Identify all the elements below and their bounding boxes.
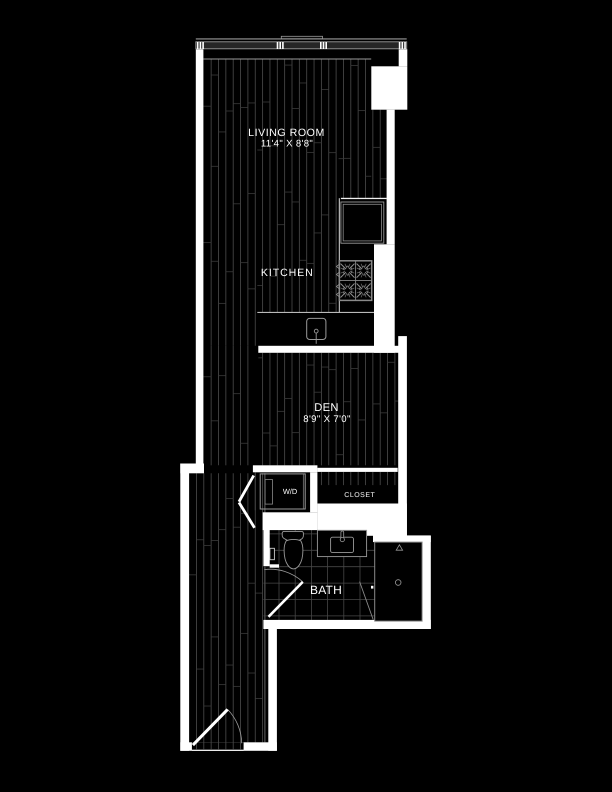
svg-text:DEN: DEN [314,402,339,414]
svg-text:11'4" X 8'8": 11'4" X 8'8" [261,139,313,150]
svg-text:LIVING ROOM: LIVING ROOM [248,127,325,139]
svg-text:KITCHEN: KITCHEN [261,267,314,279]
svg-text:CLOSET: CLOSET [344,492,375,499]
svg-text:W/D: W/D [283,487,297,496]
svg-text:8'9" X 7'0": 8'9" X 7'0" [303,414,350,425]
svg-text:BATH: BATH [310,583,342,597]
